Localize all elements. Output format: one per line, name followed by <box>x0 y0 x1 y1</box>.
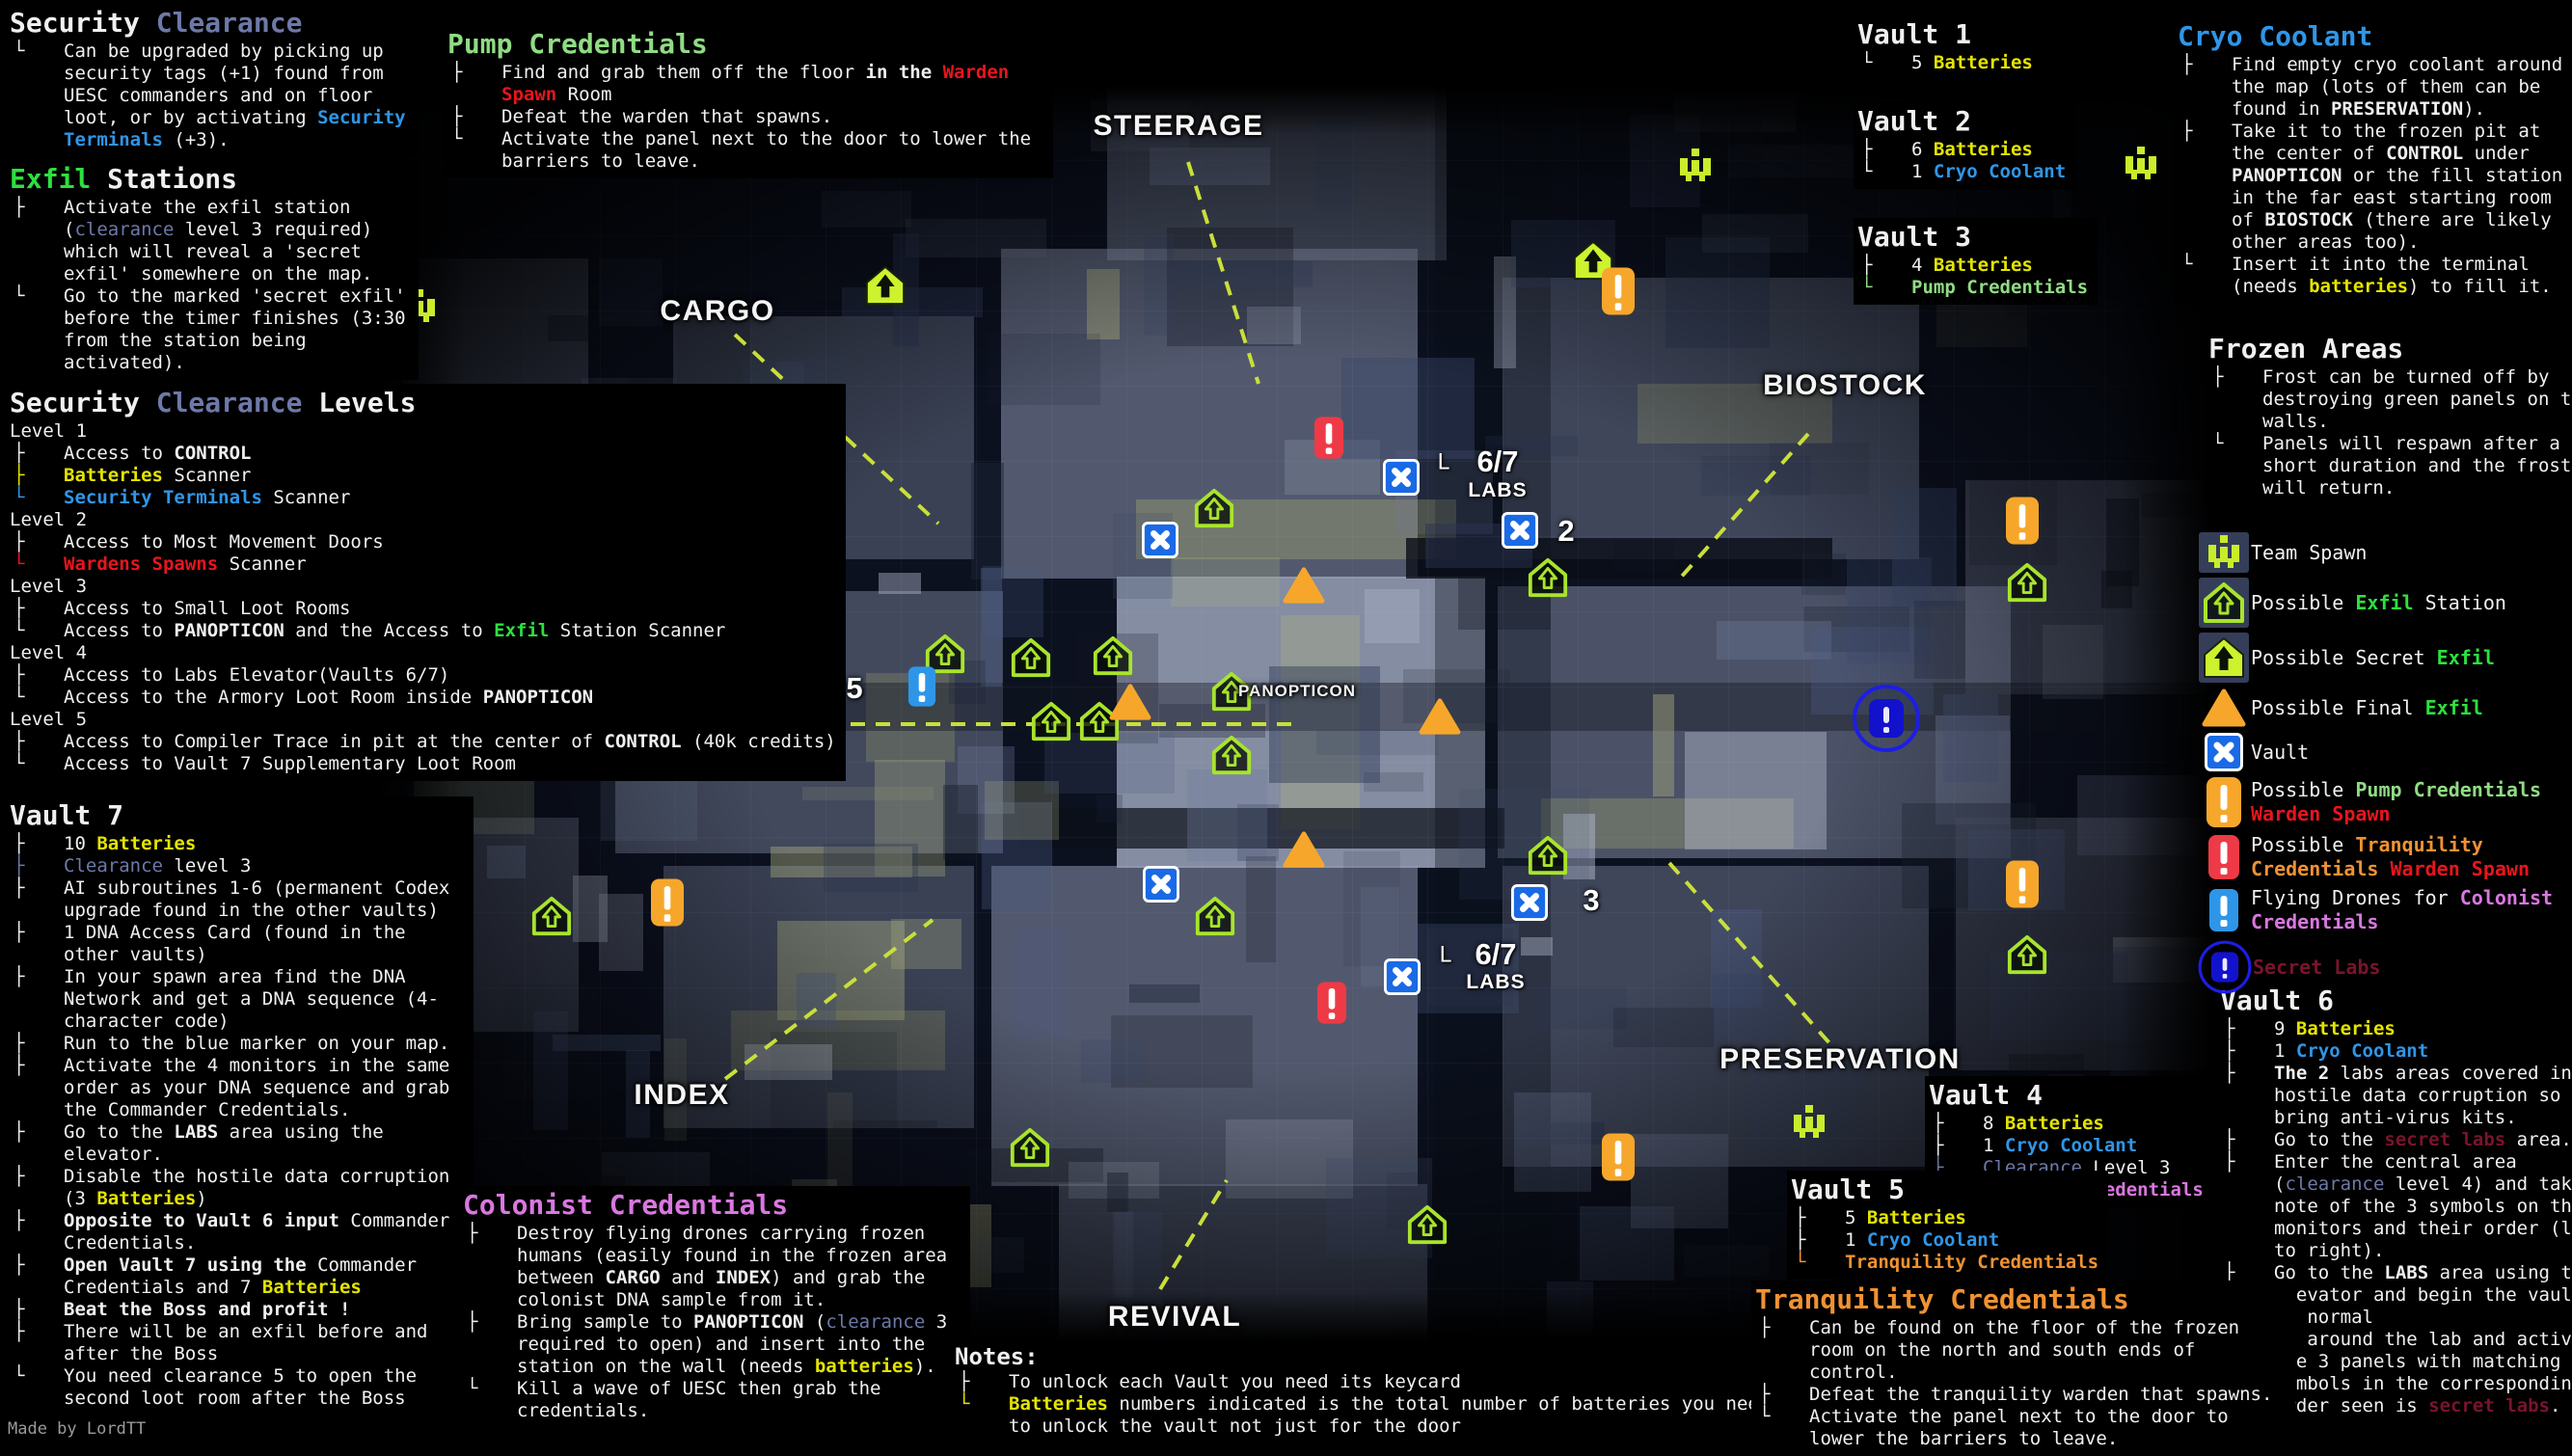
guide-line-text: Insert it into the terminal (needs batte… <box>2232 254 2567 298</box>
guide-line: ├Frost can be turned off by destroying g… <box>2208 366 2572 433</box>
text-segment: clearance <box>2285 1173 2384 1195</box>
guide-line-text: Find empty cryo coolant around the map (… <box>2232 54 2567 121</box>
text-segment: Clearance <box>64 855 163 876</box>
legend-icon-tile <box>2207 834 2240 880</box>
tree-bullet: ├ <box>10 833 64 855</box>
tree-bullet: ├ <box>2220 1063 2274 1129</box>
text-segment: Warden Spawn <box>2391 857 2531 880</box>
guide-line-text: Go to the LABS area using the elevator a… <box>2274 1262 2572 1329</box>
credit: Made by LordTT <box>8 1419 146 1439</box>
legend-label: Possible TranquilityCredentials Warden S… <box>2251 833 2530 881</box>
legend-icon-tile <box>2199 578 2249 628</box>
guide-line: └Kill a wave of UESC then grab the crede… <box>463 1378 961 1422</box>
legend-label: Possible Secret Exfil <box>2251 646 2495 670</box>
legend-label: Possible Final Exfil <box>2251 696 2483 720</box>
legend-icon-tile <box>2205 733 2243 771</box>
text-segment: Possible <box>2251 778 2355 801</box>
text-segment: CONTROL <box>174 443 251 464</box>
text-segment: LABS <box>174 1121 218 1143</box>
text-segment: Go to the <box>2274 1262 2384 1283</box>
guide-line: └Go to the marked 'secret exfil' before … <box>10 285 409 374</box>
tree-bullet: ├ <box>2220 1040 2274 1063</box>
legend-row: Possible TranquilityCredentials Warden S… <box>2197 833 2553 881</box>
tree-bullet: ├ <box>10 465 64 487</box>
text-segment: Pump Credentials <box>447 28 708 60</box>
text-segment: (there are likely other areas too). <box>2232 209 2552 253</box>
guide-line-text: Security Terminals Scanner <box>64 487 350 509</box>
tree-bullet: └ <box>2208 433 2262 499</box>
text-segment: Go around the lab and activate the 3 pan… <box>2274 1329 2572 1416</box>
guide-line: └Activate the panel next to the door to … <box>1755 1406 2286 1450</box>
text-segment: Cryo Coolant <box>2296 1040 2428 1062</box>
text-segment: Go to the <box>2274 1129 2384 1150</box>
text-segment: . <box>2550 1395 2560 1416</box>
text-segment: Possible <box>2251 591 2355 614</box>
text-segment: Take it to the frozen pit at the center … <box>2232 121 2540 164</box>
guide-line: └Insert it into the terminal (needs batt… <box>2178 254 2567 298</box>
tree-bullet: ├ <box>10 1299 64 1321</box>
tree-bullet: ├ <box>10 531 64 553</box>
guide-line-text: Activate the exfil station (clearance le… <box>64 197 409 285</box>
text-segment: secret labs <box>2428 1395 2550 1416</box>
text-segment: Vault 1 <box>1857 18 1971 50</box>
guide-line-text: Panels will respawn after a short durati… <box>2262 433 2572 499</box>
text-segment: area. <box>2505 1129 2572 1150</box>
guide-line-text: Access to Small Loot Rooms <box>64 598 350 620</box>
text-segment <box>2378 857 2390 880</box>
legend-label: Team Spawn <box>2251 541 2367 565</box>
section-frozen-areas: Frozen Areas├Frost can be turned off by … <box>2205 330 2572 505</box>
tree-bullet: ├ <box>10 197 64 285</box>
tree-bullet: └ <box>1755 1406 1809 1450</box>
legend-label: Possible Pump CredentialsWarden Spawn <box>2251 778 2541 826</box>
text-segment: Opposite to Vault 6 input <box>64 1210 339 1231</box>
tree-bullet: ├ <box>10 598 64 620</box>
text-segment: The 2 <box>2274 1063 2329 1084</box>
legend-row: Team Spawn <box>2197 532 2553 573</box>
section-title: Vault 1 <box>1857 17 2033 52</box>
legend-row: Possible Exfil Station <box>2197 578 2553 628</box>
text-segment: Kill a wave of UESC then grab the creden… <box>517 1378 881 1421</box>
legend-label-line: Possible Secret Exfil <box>2251 646 2495 670</box>
tree-bullet: ├ <box>10 664 64 687</box>
text-segment: Exfil <box>2355 591 2413 614</box>
guide-line: ├Activate the exfil station (clearance l… <box>10 197 409 285</box>
text-segment: Activate the exfil station ( <box>64 197 350 240</box>
legend-label-line: Flying Drones for Colonist <box>2251 886 2553 910</box>
guide-line-text: Level 4 <box>10 642 87 664</box>
text-segment: Security <box>10 7 156 39</box>
legend-label-line: Secret Labs <box>2253 956 2380 980</box>
section-security-clearance: Security Clearance└Can be upgraded by pi… <box>6 4 419 157</box>
section-cryo-coolant: Cryo Coolant├Find empty cryo coolant aro… <box>2174 17 2572 304</box>
text-segment: Enter the central area ( <box>2274 1151 2517 1195</box>
section-vault-6: Vault 6├9 Batteries├1 Cryo Coolant├The 2… <box>2216 982 2572 1423</box>
guide-line-text: Batteries numbers indicated is the total… <box>1009 1393 1790 1438</box>
tree-bullet: ├ <box>10 1321 64 1365</box>
text-segment: Tranquility <box>2355 833 2482 856</box>
text-segment: ). <box>914 1356 936 1377</box>
text-segment: Batteries <box>96 1188 196 1209</box>
text-segment: 9 <box>2274 1018 2296 1039</box>
text-segment: There will be an exfil before and after … <box>64 1321 428 1364</box>
tree-bullet: ├ <box>2220 1018 2274 1040</box>
text-segment: 1 DNA Access Card (found in the other va… <box>64 922 406 965</box>
guide-line-text: You need clearance 5 to open the second … <box>64 1365 464 1410</box>
legend-icon-tile <box>2208 888 2239 932</box>
tree-bullet: └ <box>10 553 64 576</box>
legend-icon-tile <box>2197 939 2253 995</box>
text-segment: Level 3 <box>10 576 87 597</box>
text-segment: (+3). <box>163 129 230 150</box>
tree-bullet: └ <box>10 620 64 642</box>
text-segment: Exfil <box>10 163 91 195</box>
text-segment: Level 4 <box>10 642 87 663</box>
text-segment: Clearance <box>156 387 303 418</box>
legend-row: Possible Final Exfil <box>2197 688 2553 728</box>
guide-line: ├9 Batteries <box>2220 1018 2572 1040</box>
text-segment: Frost can be turned off by destroying gr… <box>2262 366 2572 432</box>
map-guide-page: STEERAGECARGOBIOSTOCKCONTROLINDEXPRESERV… <box>0 0 2572 1446</box>
legend-label: Possible Exfil Station <box>2251 591 2506 615</box>
text-segment: Notes: <box>955 1343 1039 1370</box>
text-segment: Level 5 <box>10 709 87 730</box>
text-segment: PANOPTICON <box>2232 165 2342 186</box>
text-segment: Clearance <box>156 7 303 39</box>
text-segment: Frozen Areas <box>2208 333 2403 364</box>
legend-row: Flying Drones for ColonistCredentials <box>2197 886 2553 934</box>
text-segment: Go to the marked 'secret exfil' before t… <box>64 285 406 373</box>
legend-drone-icon <box>2197 888 2251 932</box>
text-segment: Batteries <box>96 833 196 854</box>
text-segment: 1 <box>2274 1040 2296 1062</box>
text-segment: Defeat the tranquility warden that spawn… <box>1809 1384 2272 1405</box>
legend-vault-icon <box>2197 733 2251 771</box>
text-segment: Open Vault 7 using the <box>64 1254 307 1276</box>
guide-line: ├To unlock each Vault you need its keyca… <box>955 1371 1790 1393</box>
text-segment: Access to <box>64 620 174 641</box>
legend-row: Secret Labs <box>2197 939 2553 995</box>
legend-exfil-station-icon <box>2197 578 2251 628</box>
tree-bullet: └ <box>10 1365 64 1410</box>
guide-line: └Batteries numbers indicated is the tota… <box>955 1393 1790 1438</box>
legend-label: Secret Labs <box>2253 956 2380 980</box>
text-segment: batteries <box>2309 276 2408 297</box>
guide-line-text: Access to CONTROL <box>64 443 251 465</box>
text-segment: To unlock each Vault you need its keycar… <box>1009 1371 1461 1392</box>
section-title: Notes: <box>955 1342 1790 1371</box>
text-segment: 5 <box>1911 52 1934 73</box>
legend-tranq-warden-icon <box>2197 834 2251 880</box>
text-segment: Scanner <box>262 487 351 508</box>
legend-pump-warden-icon <box>2197 776 2251 828</box>
tree-bullet: ├ <box>10 1210 64 1254</box>
tree-bullet: ├ <box>955 1371 1009 1393</box>
tree-bullet: ├ <box>10 1254 64 1299</box>
text-segment: Stations <box>91 163 237 195</box>
text-segment: Commander Credentials and 7 <box>64 1254 417 1298</box>
text-segment: Possible <box>2251 833 2355 856</box>
text-segment: level 4) and take note of the 3 symbols … <box>2274 1173 2572 1261</box>
text-segment: Colonist <box>2460 886 2553 909</box>
text-segment: PRESERVATION <box>2331 98 2463 120</box>
section-vault-1: Vault 1└5 Batteries <box>1854 15 2043 80</box>
guide-line-text: Go to the marked 'secret exfil' before t… <box>64 285 409 374</box>
guide-line: ├Go to the LABS area using the elevator … <box>2220 1262 2572 1329</box>
guide-line-text: Enter the central area (clearance level … <box>2274 1151 2572 1262</box>
text-segment: labs areas covered in hostile data corru… <box>2274 1063 2572 1128</box>
text-segment: Team Spawn <box>2251 541 2367 564</box>
guide-line: └You need clearance 5 to open the second… <box>10 1365 464 1410</box>
guide-line-text: Take it to the frozen pit at the center … <box>2232 121 2567 254</box>
tree-bullet: └ <box>10 40 64 151</box>
tree-bullet: └ <box>1857 52 1911 74</box>
legend-row: Vault <box>2197 733 2553 771</box>
tree-bullet: ├ <box>10 877 64 922</box>
tree-bullet: ├ <box>2208 366 2262 433</box>
guide-line: ├Take it to the frozen pit at the center… <box>2178 121 2567 254</box>
text-segment: LABS <box>2384 1262 2428 1283</box>
text-segment: Pump Credentials <box>2355 778 2541 801</box>
guide-line: └Panels will respawn after a short durat… <box>2208 433 2572 499</box>
section-notes: Notes:├To unlock each Vault you need its… <box>951 1340 1800 1443</box>
text-segment: Station <box>2414 591 2506 614</box>
text-segment: Level 2 <box>10 509 87 530</box>
text-segment: numbers indicated is the total number of… <box>1009 1393 1770 1437</box>
guide-line-text: Go to the secret labs area. <box>2274 1129 2572 1151</box>
text-segment: Possible Secret <box>2251 646 2437 669</box>
guide-line-text: Can be upgraded by picking up security t… <box>64 40 409 151</box>
tree-bullet: ├ <box>10 1055 64 1121</box>
tree-bullet: ├ <box>10 922 64 966</box>
tree-bullet: ├ <box>10 966 64 1033</box>
guide-line: ├Defeat the tranquility warden that spaw… <box>1755 1384 2286 1406</box>
tree-bullet: ├ <box>10 1121 64 1166</box>
guide-line-text: Level 5 <box>10 709 87 731</box>
section-title: Cryo Coolant <box>2178 19 2567 54</box>
text-segment: Security Terminals <box>64 487 262 508</box>
map-grid <box>374 85 2212 1342</box>
text-segment: Vault 7 <box>10 799 123 831</box>
guide-line-text: Kill a wave of UESC then grab the creden… <box>517 1378 961 1422</box>
legend-label-line: Credentials Warden Spawn <box>2251 857 2530 881</box>
guide-line-text: Defeat the tranquility warden that spawn… <box>1809 1384 2286 1406</box>
section-title: Pump Credentials <box>447 27 1043 62</box>
text-segment: Insert it into the terminal (needs <box>2232 254 2530 297</box>
guide-line: ├The 2 labs areas covered in hostile dat… <box>2220 1063 2572 1129</box>
tree-bullet: └ <box>2220 1329 2274 1417</box>
guide-line-text: Batteries Scanner <box>64 465 251 487</box>
legend-label-line: Credentials <box>2251 910 2553 934</box>
legend-icon-tile <box>2199 633 2249 683</box>
text-segment: Flying Drones for <box>2251 886 2460 909</box>
text-segment: Vault <box>2251 741 2309 764</box>
legend-icon-tile <box>2206 776 2242 828</box>
guide-line: └Can be upgraded by picking up security … <box>10 40 409 151</box>
legend-icon-tile <box>2199 532 2249 573</box>
text-segment: PANOPTICON <box>174 620 284 641</box>
text-segment: ) <box>196 1188 206 1209</box>
text-segment: Credentials <box>2251 910 2378 933</box>
text-segment: or the fill station in the far east star… <box>2232 165 2562 230</box>
text-segment: Warden Spawn <box>2251 802 2391 825</box>
tree-bullet: ├ <box>1755 1384 1809 1406</box>
guide-line: ├1 Cryo Coolant <box>2220 1040 2572 1063</box>
text-segment: area using the elevator and begin the va… <box>2274 1262 2572 1328</box>
text-segment: Access to Small Loot Rooms <box>64 598 350 619</box>
text-segment: 10 <box>64 833 96 854</box>
tree-bullet: ├ <box>10 731 64 753</box>
text-segment: batteries <box>815 1356 914 1377</box>
guide-line-text: 1 Cryo Coolant <box>2274 1040 2572 1063</box>
text-segment: Activate the panel next to the door to l… <box>1809 1406 2229 1449</box>
guide-line: ├Go to the secret labs area. <box>2220 1129 2572 1151</box>
text-segment: Exfil <box>2425 696 2483 719</box>
guide-line: └Go around the lab and activate the 3 pa… <box>2220 1329 2572 1417</box>
section-exfil-stations: Exfil Stations├Activate the exfil statio… <box>6 160 419 380</box>
text-segment: ). <box>2463 98 2485 120</box>
legend-final-exfil-icon <box>2197 688 2251 728</box>
legend-row: Possible Secret Exfil <box>2197 633 2553 683</box>
guide-line-text: Access to Most Movement Doors <box>64 531 384 553</box>
text-segment: Access to <box>64 443 174 464</box>
tree-bullet: └ <box>955 1393 1009 1438</box>
text-segment: Beat the Boss and profit ! <box>64 1299 350 1320</box>
text-segment: Credentials <box>2251 857 2378 880</box>
text-segment: Panels will respawn after a short durati… <box>2262 433 2571 499</box>
legend-label-line: Possible Pump Credentials <box>2251 778 2541 802</box>
text-segment: Exfil <box>2437 646 2495 669</box>
text-segment: BIOSTOCK <box>2264 209 2353 230</box>
legend-secret-exfil-icon <box>2197 633 2251 683</box>
text-segment: Go to the <box>64 1121 174 1143</box>
text-segment: Batteries <box>262 1277 362 1298</box>
text-segment: Batteries <box>1934 52 2033 73</box>
guide-line-text: 9 Batteries <box>2274 1018 2572 1040</box>
text-segment: level 3 <box>163 855 252 876</box>
tree-bullet: └ <box>10 487 64 509</box>
text-segment: area using the elevator. <box>64 1121 384 1165</box>
text-segment: under <box>2463 143 2530 164</box>
tree-bullet: ├ <box>2220 1129 2274 1151</box>
legend-label-line: Team Spawn <box>2251 541 2367 565</box>
text-segment: Wardens Spawns <box>64 553 218 575</box>
legend-label-line: Possible Final Exfil <box>2251 696 2483 720</box>
guide-line-text: Go around the lab and activate the 3 pan… <box>2274 1329 2572 1417</box>
tree-bullet: ├ <box>10 855 64 877</box>
legend-label: Vault <box>2251 741 2309 765</box>
text-segment: in the <box>866 62 943 83</box>
text-segment: Security Terminals <box>64 107 406 150</box>
guide-line-text: Wardens Spawns Scanner <box>64 553 307 576</box>
section-title: Security Clearance <box>10 6 409 40</box>
guide-line-text: Activate the panel next to the door to l… <box>1809 1406 2286 1450</box>
legend-icon-tile <box>2202 688 2246 728</box>
guide-line-text: Level 3 <box>10 576 87 598</box>
text-segment: Possible Final <box>2251 696 2425 719</box>
tree-bullet: ├ <box>2220 1151 2274 1262</box>
text-segment: Can be upgraded by picking up security t… <box>64 40 384 128</box>
text-segment: Scanner <box>163 465 252 486</box>
legend-row: Possible Pump CredentialsWarden Spawn <box>2197 776 2553 828</box>
tree-bullet: └ <box>463 1378 517 1422</box>
section-title: Frozen Areas <box>2208 332 2572 366</box>
guide-line-text: 5 Batteries <box>1911 52 2033 74</box>
legend-label-line: Warden Spawn <box>2251 802 2541 826</box>
guide-line-text: Level 1 <box>10 420 87 443</box>
text-segment: Cryo Coolant <box>2178 20 2372 52</box>
text-segment: Security <box>10 387 156 418</box>
legend-label: Flying Drones for ColonistCredentials <box>2251 886 2553 934</box>
text-segment: Secret Labs <box>2253 956 2380 979</box>
legend-secret-labs-icon <box>2197 939 2253 995</box>
text-segment: Level 1 <box>10 420 87 442</box>
text-segment: Access to Most Movement Doors <box>64 531 384 553</box>
legend-team-spawn-icon <box>2197 532 2251 573</box>
section-title: Exfil Stations <box>10 162 409 197</box>
legend-label-line: Vault <box>2251 741 2309 765</box>
text-segment: CONTROL <box>2386 143 2463 164</box>
guide-line: ├Find empty cryo coolant around the map … <box>2178 54 2567 121</box>
text-segment: Scanner <box>218 553 307 575</box>
tree-bullet: └ <box>10 753 64 775</box>
text-segment: You need clearance 5 to open the second … <box>64 1365 417 1409</box>
text-segment: secret labs <box>2384 1129 2505 1150</box>
text-segment: level 3 required) which will reveal a 's… <box>64 219 372 284</box>
text-segment: Batteries <box>1009 1393 1108 1415</box>
tree-bullet: └ <box>10 285 64 374</box>
text-segment: clearance <box>74 219 174 240</box>
text-segment: Find and grab them off the floor <box>501 62 866 83</box>
guide-line: ├Enter the central area (clearance level… <box>2220 1151 2572 1262</box>
tree-bullet: └ <box>10 687 64 709</box>
text-segment: ) to fill it. <box>2408 276 2552 297</box>
guide-line-text: To unlock each Vault you need its keycar… <box>1009 1371 1790 1393</box>
text-segment: Find empty cryo coolant around the map (… <box>2232 54 2562 120</box>
text-segment: Batteries <box>2296 1018 2396 1039</box>
legend-label-line: Possible Tranquility <box>2251 833 2530 857</box>
legend: Team Spawn Possible Exfil Station Possib… <box>2197 532 2553 1000</box>
tree-bullet: ├ <box>10 1033 64 1055</box>
guide-line-text: The 2 labs areas covered in hostile data… <box>2274 1063 2572 1129</box>
station-map <box>374 85 2212 1342</box>
text-segment: Batteries <box>64 465 163 486</box>
guide-line-text: Level 2 <box>10 509 87 531</box>
tree-bullet: ├ <box>10 1166 64 1210</box>
guide-line-text: Frost can be turned off by destroying gr… <box>2262 366 2572 433</box>
guide-line: └5 Batteries <box>1857 52 2033 74</box>
tree-bullet: ├ <box>10 443 64 465</box>
tree-bullet: ├ <box>2220 1262 2274 1329</box>
legend-label-line: Possible Exfil Station <box>2251 591 2506 615</box>
